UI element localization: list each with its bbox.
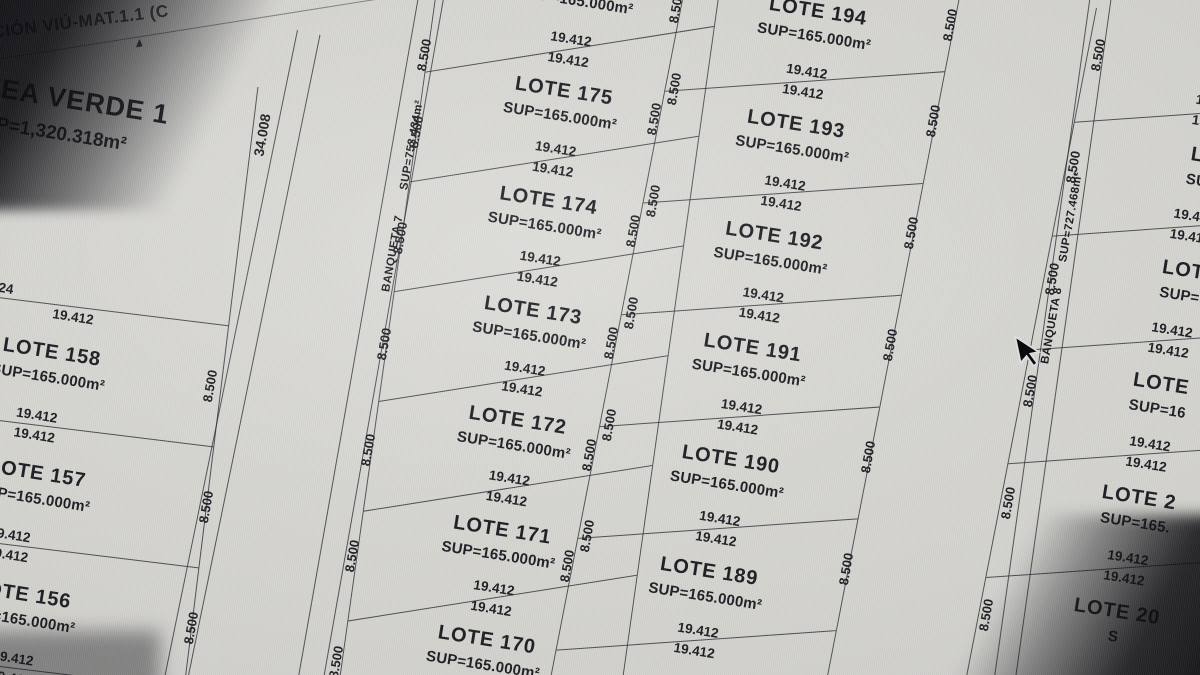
lot-number: LO: [1188, 143, 1200, 171]
lot-label: LOTSUP=: [1157, 256, 1200, 307]
lot-label: LOTE 194SUP=165.000m²: [756, 0, 876, 54]
lot-label: LOTE 193SUP=165.000m²: [734, 104, 854, 166]
dim-below: 19.412: [1102, 567, 1145, 588]
lot-surface: SUP: [1185, 171, 1200, 193]
screen-speck: [134, 39, 145, 50]
lot-surface: SUP=: [1157, 284, 1200, 307]
dim-below: 19.412: [1125, 453, 1168, 474]
dim-below: 19.412: [760, 193, 803, 214]
dim-below: 19.412: [1191, 112, 1200, 133]
dim-below: 19.412: [738, 305, 781, 326]
dim-below: 19.412: [485, 488, 528, 509]
lot-surface: SUP=165.000m²: [518, 0, 634, 18]
dim-below: 19.412: [1169, 226, 1200, 247]
lot-label: LOTE 156SUP=165.000m²: [0, 575, 80, 637]
lot-label: LOTE 170SUP=165.000m²: [425, 620, 545, 675]
lot-label: LOTE 192SUP=165.000m²: [712, 216, 832, 278]
edge-lot-column: LSU19.41219.412LOSUP19.41219.412LOTSUP=1…: [960, 0, 1200, 675]
dim-below: 19.412: [0, 667, 32, 675]
dim-below: 19.412: [694, 528, 737, 549]
area-verde-parcel: ÁREA VERDE 1SUP=1,320.318m²: [0, 45, 257, 325]
dim-above: 24: [0, 280, 15, 297]
lot-label: LOTESUP=16: [1128, 369, 1192, 422]
dim-below: 19.412: [51, 306, 94, 327]
dim-below: 19.412: [13, 424, 56, 445]
lot-number: LOT: [1161, 256, 1200, 285]
lot-label: LOTE 158SUP=165.000m²: [0, 332, 110, 394]
lot-label: LOTE 189SUP=165.000m²: [647, 552, 767, 614]
dim-below: 19.412: [547, 49, 590, 70]
lot-label: LOTE 20S: [1069, 594, 1162, 652]
lot-label: LOSUP: [1185, 143, 1200, 192]
dim-below: 19.412: [516, 269, 559, 290]
lot-number: LOTE: [1131, 369, 1191, 401]
lot-label: LOTE 174SUP=165.000m²: [487, 181, 607, 243]
lot-label: LOTE 190SUP=165.000m²: [669, 440, 789, 502]
dim-below: 19.412: [1147, 340, 1190, 361]
lot-row-fragment: 19.41219.412LOTE 20S: [964, 558, 1200, 675]
lot-label: LOTE 172SUP=165.000m²: [456, 400, 576, 462]
dim-below: 19.412: [673, 640, 716, 661]
lot-label: LOTE 175SUP=165.000m²: [502, 71, 622, 133]
dim-below: 19.412: [531, 159, 574, 180]
lot-label: LOTE 171SUP=165.000m²: [440, 510, 560, 572]
lot-row-fragment: 19.41219.412LOTE 2SUP=165.: [986, 444, 1200, 578]
lot-label: LOTE 157SUP=165.000m²: [0, 453, 95, 515]
dim-below: 19.412: [716, 416, 759, 437]
left-lot-column: ÁREA VERDE 1SUP=1,320.318m²2419.412LOTE …: [0, 45, 258, 675]
lot-label: SUP=165.000m²: [518, 0, 635, 18]
plan-viewport: CIÓN VIÚ-MAT.1.1 (C ÁREA VERDE 1SUP=1,32…: [0, 0, 1200, 675]
lot-surface: SUP=16: [1128, 396, 1187, 422]
lot-label: LOTE 191SUP=165.000m²: [691, 328, 811, 390]
dim-below: 19.412: [500, 378, 543, 399]
lot-label: LOTE 2SUP=165.: [1097, 481, 1178, 537]
dim-below: 19.412: [781, 81, 824, 102]
dim-below: 19.412: [0, 544, 29, 565]
dim-below: 19.412: [470, 598, 513, 619]
lot-label: LOTE 173SUP=165.000m²: [471, 291, 591, 353]
